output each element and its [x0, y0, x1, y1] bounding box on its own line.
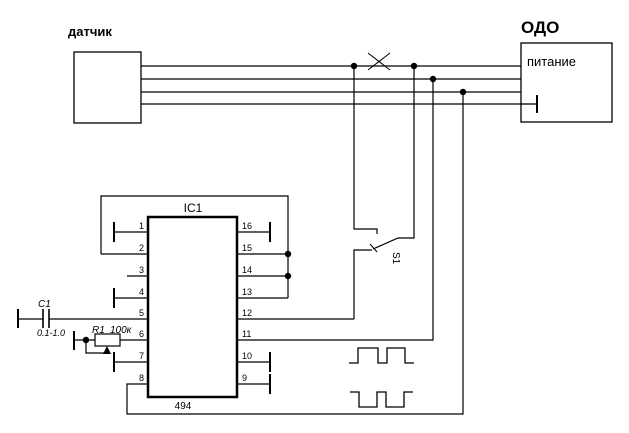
switch-contact-left [354, 66, 377, 234]
pin-number: 10 [242, 351, 252, 361]
switch-blade [373, 66, 414, 249]
pin-number: 11 [242, 329, 251, 339]
pin-number: 14 [242, 265, 252, 275]
ic-body [148, 217, 237, 397]
square-wave-icon [349, 348, 414, 363]
waveform-icons [349, 348, 414, 407]
square-wave-inverted-icon [350, 392, 413, 407]
ic-left-pins [49, 222, 148, 372]
pin11-wire [237, 79, 433, 340]
pin-number: 4 [139, 287, 144, 297]
switch-label: S1 [390, 252, 401, 265]
circuit-schematic: датчик ОДО питание S1 IC1 494 [0, 0, 629, 433]
ic-name-label: IC1 [184, 201, 203, 215]
junction-dot [411, 63, 417, 69]
resistor-value-label: 100к [110, 325, 133, 336]
junction-dot [430, 76, 436, 82]
pin-number: 15 [242, 243, 252, 253]
capacitor-name-label: C1 [38, 299, 51, 310]
capacitor-c1 [18, 309, 49, 328]
switch-pivot-lead [354, 250, 372, 319]
pin-number: 9 [242, 373, 247, 383]
pin-number: 6 [139, 329, 144, 339]
capacitor-value-label: 0.1-1.0 [37, 328, 65, 338]
pin-number: 5 [139, 308, 144, 318]
junction-dot [351, 63, 357, 69]
pin-number: 7 [139, 351, 144, 361]
harness-wires [141, 66, 521, 104]
pin-number: 8 [139, 373, 144, 383]
unit-label: ОДО [521, 18, 559, 37]
junction-dot [285, 273, 291, 279]
junction-dot [460, 89, 466, 95]
ic-part-label: 494 [175, 401, 192, 412]
junction-dot [285, 251, 291, 257]
resistor-name-label: R1 [92, 325, 105, 336]
sensor-box [74, 52, 141, 123]
power-label: питание [527, 54, 576, 69]
pin-number: 16 [242, 221, 252, 231]
pin-number: 2 [139, 243, 144, 253]
sensor-block [74, 52, 141, 123]
sensor-label: датчик [68, 24, 112, 39]
r1-wiper-arrow-icon [103, 346, 111, 354]
pin-number: 3 [139, 265, 144, 275]
junction-dot [83, 337, 89, 343]
pin-number: 1 [139, 221, 144, 231]
pin-number: 12 [242, 308, 252, 318]
pin-number: 13 [242, 287, 252, 297]
wire-break-icon [368, 53, 390, 70]
